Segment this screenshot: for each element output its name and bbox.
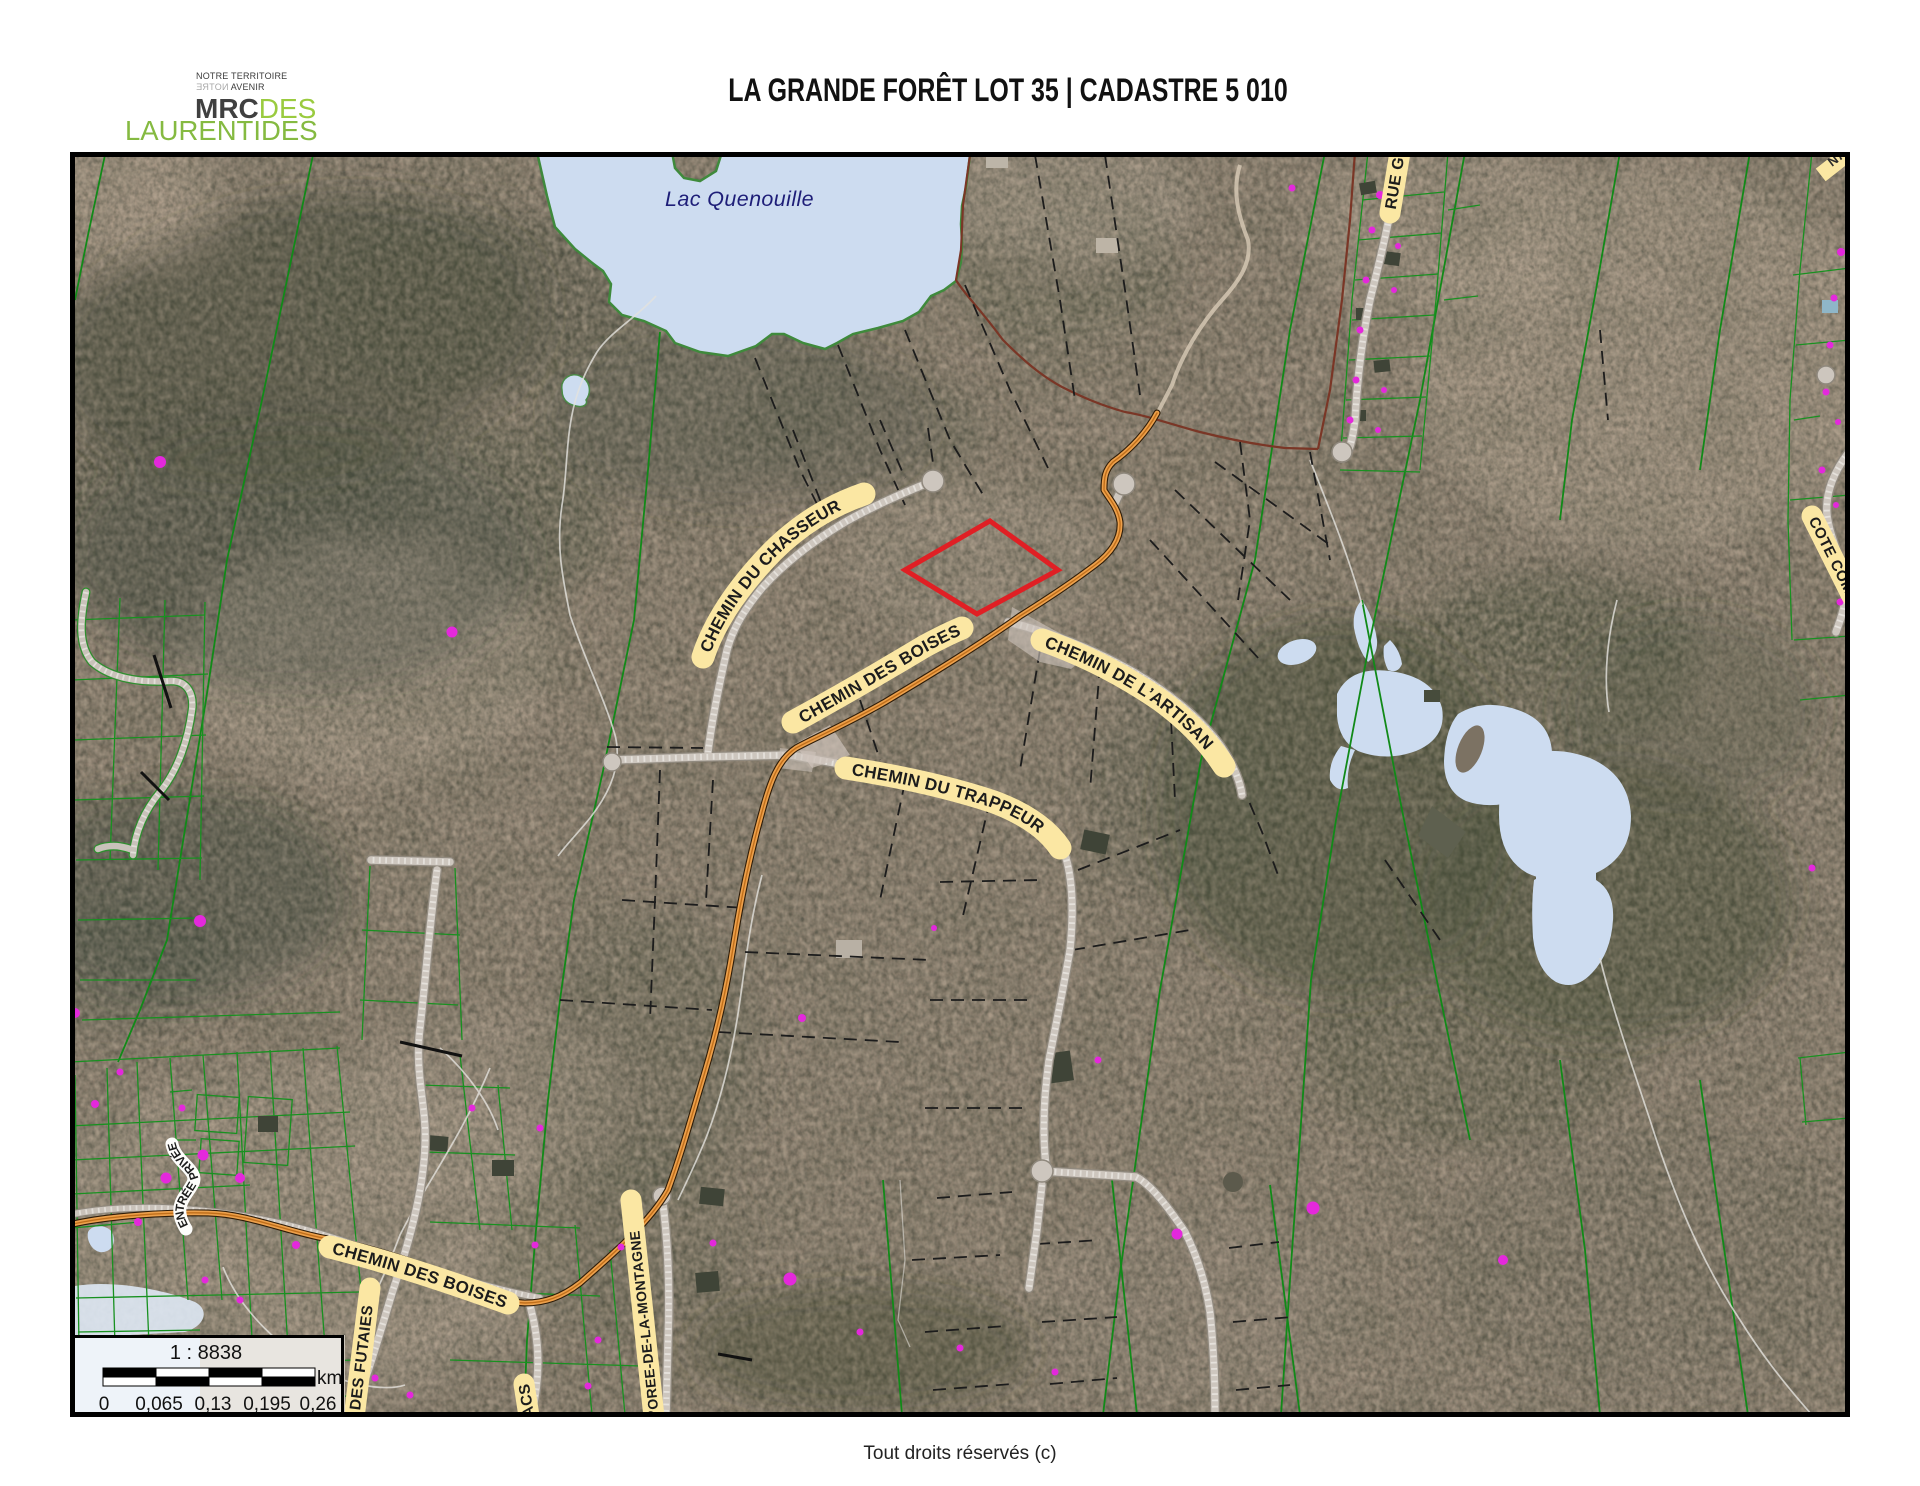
svg-text:1 : 8838: 1 : 8838 xyxy=(170,1342,242,1364)
svg-text:km: km xyxy=(317,1368,342,1389)
svg-text:0,195: 0,195 xyxy=(243,1394,291,1415)
svg-text:0,26: 0,26 xyxy=(300,1394,337,1415)
svg-text:0,13: 0,13 xyxy=(195,1394,232,1415)
svg-text:Lac Quenouille: Lac Quenouille xyxy=(665,187,814,211)
svg-text:0: 0 xyxy=(99,1394,110,1415)
svg-text:0,065: 0,065 xyxy=(135,1394,183,1415)
